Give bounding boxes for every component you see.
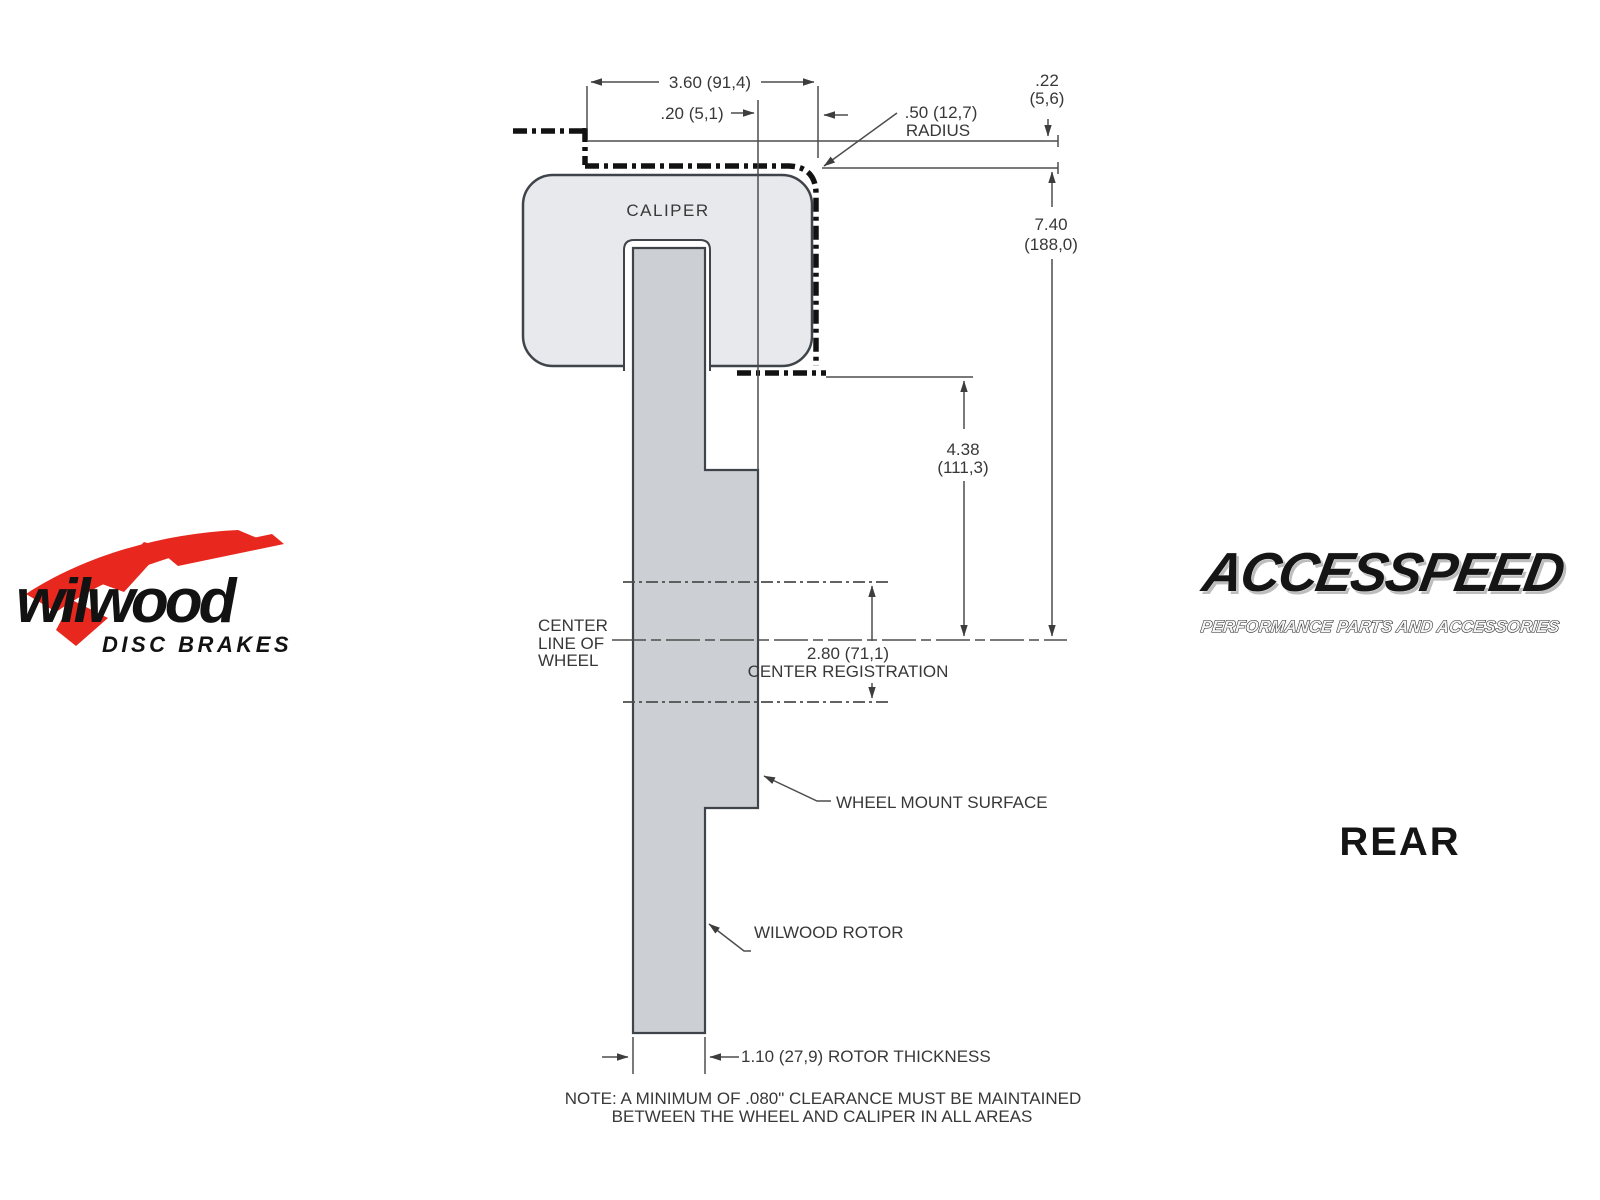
wilwood-logo: wilwood DISC BRAKES xyxy=(16,522,322,662)
center-reg-label: CENTER REGISTRATION xyxy=(748,662,949,681)
wilwood-wordmark: wilwood xyxy=(16,567,238,636)
wilwood-tagline: DISC BRAKES xyxy=(102,632,292,657)
note-line-1: NOTE: A MINIMUM OF .080" CLEARANCE MUST … xyxy=(565,1089,1081,1108)
note-line-2: BETWEEN THE WHEEL AND CALIPER IN ALL ARE… xyxy=(612,1107,1033,1126)
accesspeed-wordmark-group: ACCESSPEED ACCESSPEED xyxy=(1196,541,1572,606)
accesspeed-wordmark: ACCESSPEED xyxy=(1196,541,1569,603)
view-label: REAR xyxy=(1300,820,1500,865)
rotor-label: WILWOOD ROTOR xyxy=(754,923,904,942)
dim-gap-metric-label: (5,6) xyxy=(1030,89,1065,108)
dim-radius-word-label: RADIUS xyxy=(906,121,970,140)
dim-radius-value-label: .50 (12,7) xyxy=(905,103,978,122)
accesspeed-logo: ACCESSPEED ACCESSPEED PERFORMANCE PARTS … xyxy=(1180,533,1580,648)
accesspeed-tagline-group: PERFORMANCE PARTS AND ACCESSORIES xyxy=(1200,617,1560,636)
centerline-label-1: CENTER xyxy=(538,616,608,635)
centerline-label-3: WHEEL xyxy=(538,651,598,670)
dim-caliper-to-cl-metric-label: (111,3) xyxy=(937,458,988,477)
dim-overall-metric-label: (188,0) xyxy=(1024,235,1078,254)
dim-center-reg-value-label: 2.80 (71,1) xyxy=(807,644,889,663)
dim-offset-label: .20 (5,1) xyxy=(660,104,723,123)
wheel-mount-label: WHEEL MOUNT SURFACE xyxy=(836,793,1048,812)
dim-caliper-width-label: 3.60 (91,4) xyxy=(669,73,751,92)
caliper-label: CALIPER xyxy=(626,201,709,220)
technical-drawing-page: CALIPER 3.60 (91,4) .20 (5,1) .50 (12,7)… xyxy=(0,0,1600,1200)
dim-gap-value-label: .22 xyxy=(1035,71,1059,90)
dim-rotor-thickness-label: 1.10 (27,9) ROTOR THICKNESS xyxy=(741,1047,991,1066)
dim-overall-value-label: 7.40 xyxy=(1034,215,1067,234)
dim-caliper-to-cl-value-label: 4.38 xyxy=(946,440,979,459)
accesspeed-tagline: PERFORMANCE PARTS AND ACCESSORIES xyxy=(1200,617,1560,636)
